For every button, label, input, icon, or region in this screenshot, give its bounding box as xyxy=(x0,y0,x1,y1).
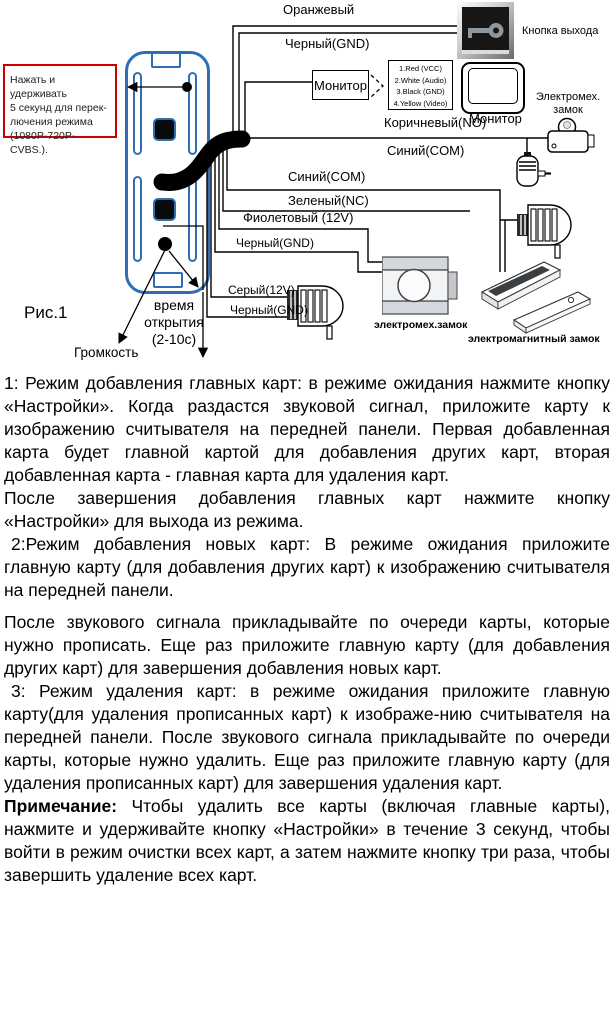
wire-label-brown: Коричневый(NO) xyxy=(384,116,486,130)
monitor-screen xyxy=(468,68,518,104)
cable-bundle xyxy=(162,139,242,182)
wire-label-violet: Фиолетовый (12V) xyxy=(243,211,353,225)
rca-pin: 3.Black (GND) xyxy=(389,86,452,98)
rca-pin: 2.White (Audio) xyxy=(389,75,452,87)
monitor-block: Монитор xyxy=(312,70,369,100)
volume-label: Громкость xyxy=(74,346,138,360)
wiring-diagram: Нажать и удерживать 5 секунд для перек- … xyxy=(0,0,614,370)
monitor-pinout-arrow xyxy=(371,75,383,97)
paragraph-enroll-cards: После звукового сигнала прикладывайте по… xyxy=(4,611,610,680)
electromech-lock-label: Электромех. замок xyxy=(530,91,606,117)
monitor-icon xyxy=(461,62,525,114)
wire-label-orange: Оранжевый xyxy=(283,3,354,17)
paragraph-add-master-cards: 1: Режим добавления главных карт: в режи… xyxy=(4,372,610,487)
figure-caption: Рис.1 xyxy=(24,306,68,320)
paragraph-note: Примечание: Чтобы удалить все карты (вкл… xyxy=(4,795,610,887)
pointer-connector xyxy=(163,226,203,290)
open-time-arrow-a xyxy=(169,251,198,287)
exit-button-label: Кнопка выхода xyxy=(522,24,598,38)
wire-label-gray: Серый(12V) xyxy=(228,283,295,297)
wire-label-blue2: Синий(COM) xyxy=(288,170,365,184)
power-adapter-right-icon xyxy=(517,203,577,261)
settings-button-dot xyxy=(182,82,192,92)
electromagnetic-lock-caption: электромагнитный замок xyxy=(468,333,600,345)
key-icon xyxy=(467,19,505,43)
note-label: Примечание: xyxy=(4,796,117,816)
wire-monitor xyxy=(245,82,312,138)
exit-button-face xyxy=(462,7,509,54)
wire-label-black-mid: Черный(GND) xyxy=(236,236,314,250)
electromagnetic-lock-icon xyxy=(478,256,598,340)
wire-label-black-exit: Черный(GND) xyxy=(285,37,369,51)
open-time-label: время открытия (2-10с) xyxy=(138,297,210,348)
electromech-lock-center-icon xyxy=(382,255,462,319)
electromech-lock-caption: электромех.замок xyxy=(374,319,467,331)
paragraph-delete-cards: 3: Режим удаления карт: в режиме ожидани… xyxy=(4,680,610,795)
instructions-text: 1: Режим добавления главных карт: в режи… xyxy=(4,372,610,887)
wire-label-green: Зеленый(NC) xyxy=(288,194,369,208)
paragraph-exit-mode: После завершения добавления главных карт… xyxy=(4,487,610,533)
wire-label-blue1: Синий(COM) xyxy=(387,144,464,158)
rca-pinout-box: 1.Red (VCC) 2.White (Audio) 3.Black (GND… xyxy=(388,60,453,110)
wire-label-black-low: Черный(GND) xyxy=(230,303,308,317)
rca-pin: 4.Yellow (Video) xyxy=(389,98,452,110)
electromech-lock-icon xyxy=(544,114,596,156)
exit-button[interactable] xyxy=(457,2,514,59)
paragraph-add-new-cards: 2:Режим добавления новых карт: В режиме … xyxy=(4,533,610,602)
small-plug-icon xyxy=(513,152,553,194)
manual-page: Нажать и удерживать 5 секунд для перек- … xyxy=(0,0,614,1024)
rca-pin: 1.Red (VCC) xyxy=(389,63,452,75)
